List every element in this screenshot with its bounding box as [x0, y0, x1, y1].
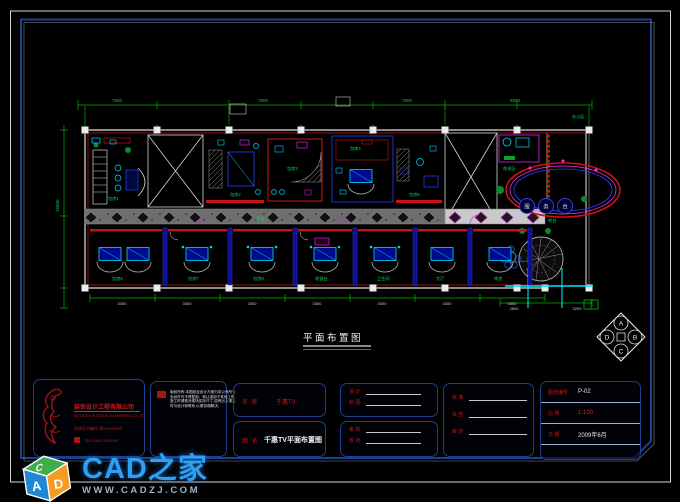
- phone-icon: [74, 437, 80, 443]
- svg-text:包房3: 包房3: [287, 165, 298, 172]
- stamp-icon: [157, 391, 166, 398]
- svg-text:务: 务: [543, 203, 549, 211]
- svg-text:收银台: 收银台: [315, 275, 328, 282]
- svg-text:包房4: 包房4: [350, 145, 361, 152]
- compass: A B C D: [584, 300, 645, 361]
- svg-text:包房8: 包房8: [253, 275, 264, 282]
- notes-box: 版权所有:本图纸及设计方案归本公司所有, 未经许可不得复制、转让或用于其他工程。…: [150, 381, 227, 457]
- signature-line: [366, 437, 421, 444]
- signature-line: [366, 426, 421, 433]
- dimension-text-bottom: 3300 3300 3300 3300 3300 3300 3300 2600 …: [118, 301, 583, 311]
- sign-label: 校 对: [349, 437, 360, 444]
- svg-text:台: 台: [562, 203, 568, 211]
- drawing-name-box: 图 名 千惠TV平面布置图: [233, 421, 326, 457]
- svg-text:包房7: 包房7: [188, 275, 199, 282]
- drawing-title: 平面布置图: [303, 332, 371, 350]
- info-value: P-02: [578, 389, 591, 395]
- signature-box-b: 审 核 校 对: [340, 421, 438, 457]
- svg-text:平面布置图: 平面布置图: [303, 332, 363, 344]
- svg-text:3300: 3300: [378, 301, 388, 306]
- lower-room-furniture: [97, 246, 513, 272]
- info-box: 图纸编号 P-02 比 例 1:100 日 期 2009年6月: [540, 381, 641, 460]
- room-labels: 包房1 包房2 包房3 包房4 包房5 包房6 包房7 包房8 走道 收银台 吧…: [108, 113, 585, 282]
- company-tel: TEL 0000-0000000: [84, 438, 118, 443]
- lower-room-walls: [90, 228, 532, 285]
- svg-text:3300: 3300: [443, 301, 453, 306]
- svg-text:吧台: 吧台: [548, 217, 556, 224]
- signature-line: [469, 428, 527, 435]
- svg-text:3300: 3300: [248, 301, 258, 306]
- corridor: [85, 209, 545, 224]
- svg-text:7500: 7500: [258, 98, 269, 103]
- company-dragon-logo: [38, 385, 72, 451]
- svg-text:3200: 3200: [573, 306, 583, 311]
- sign-label: 制 图: [349, 399, 360, 406]
- company-name-en: DECORATION DESIGN ENGINEERING CO.,LTD: [74, 414, 145, 418]
- svg-text:包房6: 包房6: [112, 275, 123, 282]
- signature-box-a: 设 计 制 图: [340, 383, 438, 417]
- signature-line: [366, 399, 421, 406]
- info-label: 图纸编号: [548, 389, 578, 396]
- svg-text:15600: 15600: [55, 199, 60, 212]
- company-tel-row: TEL 0000-0000000: [74, 437, 118, 443]
- room-upper-4: [332, 136, 393, 202]
- info-row-scale: 比 例 1:100: [541, 403, 640, 424]
- info-row-number: 图纸编号 P-02: [541, 382, 640, 403]
- brand-url[interactable]: WWW.CADZJ.COM: [82, 485, 208, 496]
- info-row-date: 日 期 2009年6月: [541, 424, 640, 445]
- room-lounge: [92, 138, 145, 204]
- notes-text: 版权所有:本图纸及设计方案归本公司所有, 未经许可不得复制、转让或用于其他工程。…: [170, 390, 238, 408]
- info-label: 比 例: [548, 410, 578, 417]
- axis-tag-boxes: [230, 97, 350, 114]
- svg-text:办公区: 办公区: [572, 113, 585, 120]
- company-divider: [74, 411, 140, 412]
- svg-text:走道: 走道: [256, 215, 265, 222]
- info-value: 2009年6月: [578, 430, 607, 439]
- svg-text:C: C: [619, 349, 624, 356]
- svg-text:D: D: [605, 335, 610, 342]
- svg-text:B: B: [633, 335, 637, 342]
- svg-text:包房5: 包房5: [409, 191, 420, 198]
- svg-text:7500: 7500: [402, 98, 413, 103]
- svg-text:卫生间: 卫生间: [377, 275, 390, 282]
- signature-line: [366, 388, 421, 395]
- sign-label: 审 核: [349, 426, 360, 433]
- svg-text:3300: 3300: [313, 301, 323, 306]
- brand-text: CAD之家: [82, 454, 208, 484]
- svg-text:3300: 3300: [183, 301, 193, 306]
- sign-label: 设 计: [349, 388, 360, 395]
- project-value: 千惠TV: [276, 397, 296, 406]
- cadzj-cube-icon: C A D: [20, 454, 74, 502]
- company-cert: 资质证书编号 第0000000号: [74, 426, 123, 432]
- svg-text:A: A: [619, 321, 624, 328]
- info-label: 日 期: [548, 431, 578, 438]
- svg-text:大厅: 大厅: [436, 275, 444, 282]
- drawing-name-value: 千惠TV平面布置图: [264, 435, 322, 445]
- cad-sheet: 7500 7500 7500 6600 15600 3300 3300 3300…: [0, 0, 680, 502]
- company-name: 装饰设计工程有限公司: [74, 402, 134, 411]
- signature-line: [469, 411, 527, 418]
- project-name-box: 名 称 千惠TV: [233, 383, 326, 417]
- info-row-empty: [541, 445, 640, 465]
- svg-text:包房1: 包房1: [108, 195, 119, 202]
- sign-label: 会 签: [452, 411, 463, 418]
- svg-text:3300: 3300: [118, 301, 128, 306]
- svg-text:7500: 7500: [112, 98, 123, 103]
- svg-text:6600: 6600: [510, 98, 521, 103]
- cadzj-watermark: C A D CAD之家 WWW.CADZJ.COM: [20, 454, 208, 502]
- sign-label: 批 准: [452, 394, 463, 401]
- drawing-name-label: 图 名: [242, 436, 259, 445]
- sign-label: 审 定: [452, 428, 463, 435]
- svg-text:休息区: 休息区: [503, 165, 516, 172]
- svg-text:2600: 2600: [510, 306, 520, 311]
- project-label: 名 称: [242, 397, 259, 406]
- svg-text:服: 服: [524, 204, 530, 211]
- signature-line: [469, 394, 527, 401]
- dimension-text-top: 7500 7500 7500 6600 15600: [55, 98, 521, 212]
- signature-box-c: 批 准 会 签 审 定: [443, 383, 534, 457]
- info-value: 1:100: [578, 410, 593, 416]
- company-box: 装饰设计工程有限公司 DECORATION DESIGN ENGINEERING…: [33, 379, 145, 457]
- svg-text:库房: 库房: [494, 275, 502, 282]
- svg-text:包房2: 包房2: [230, 191, 241, 198]
